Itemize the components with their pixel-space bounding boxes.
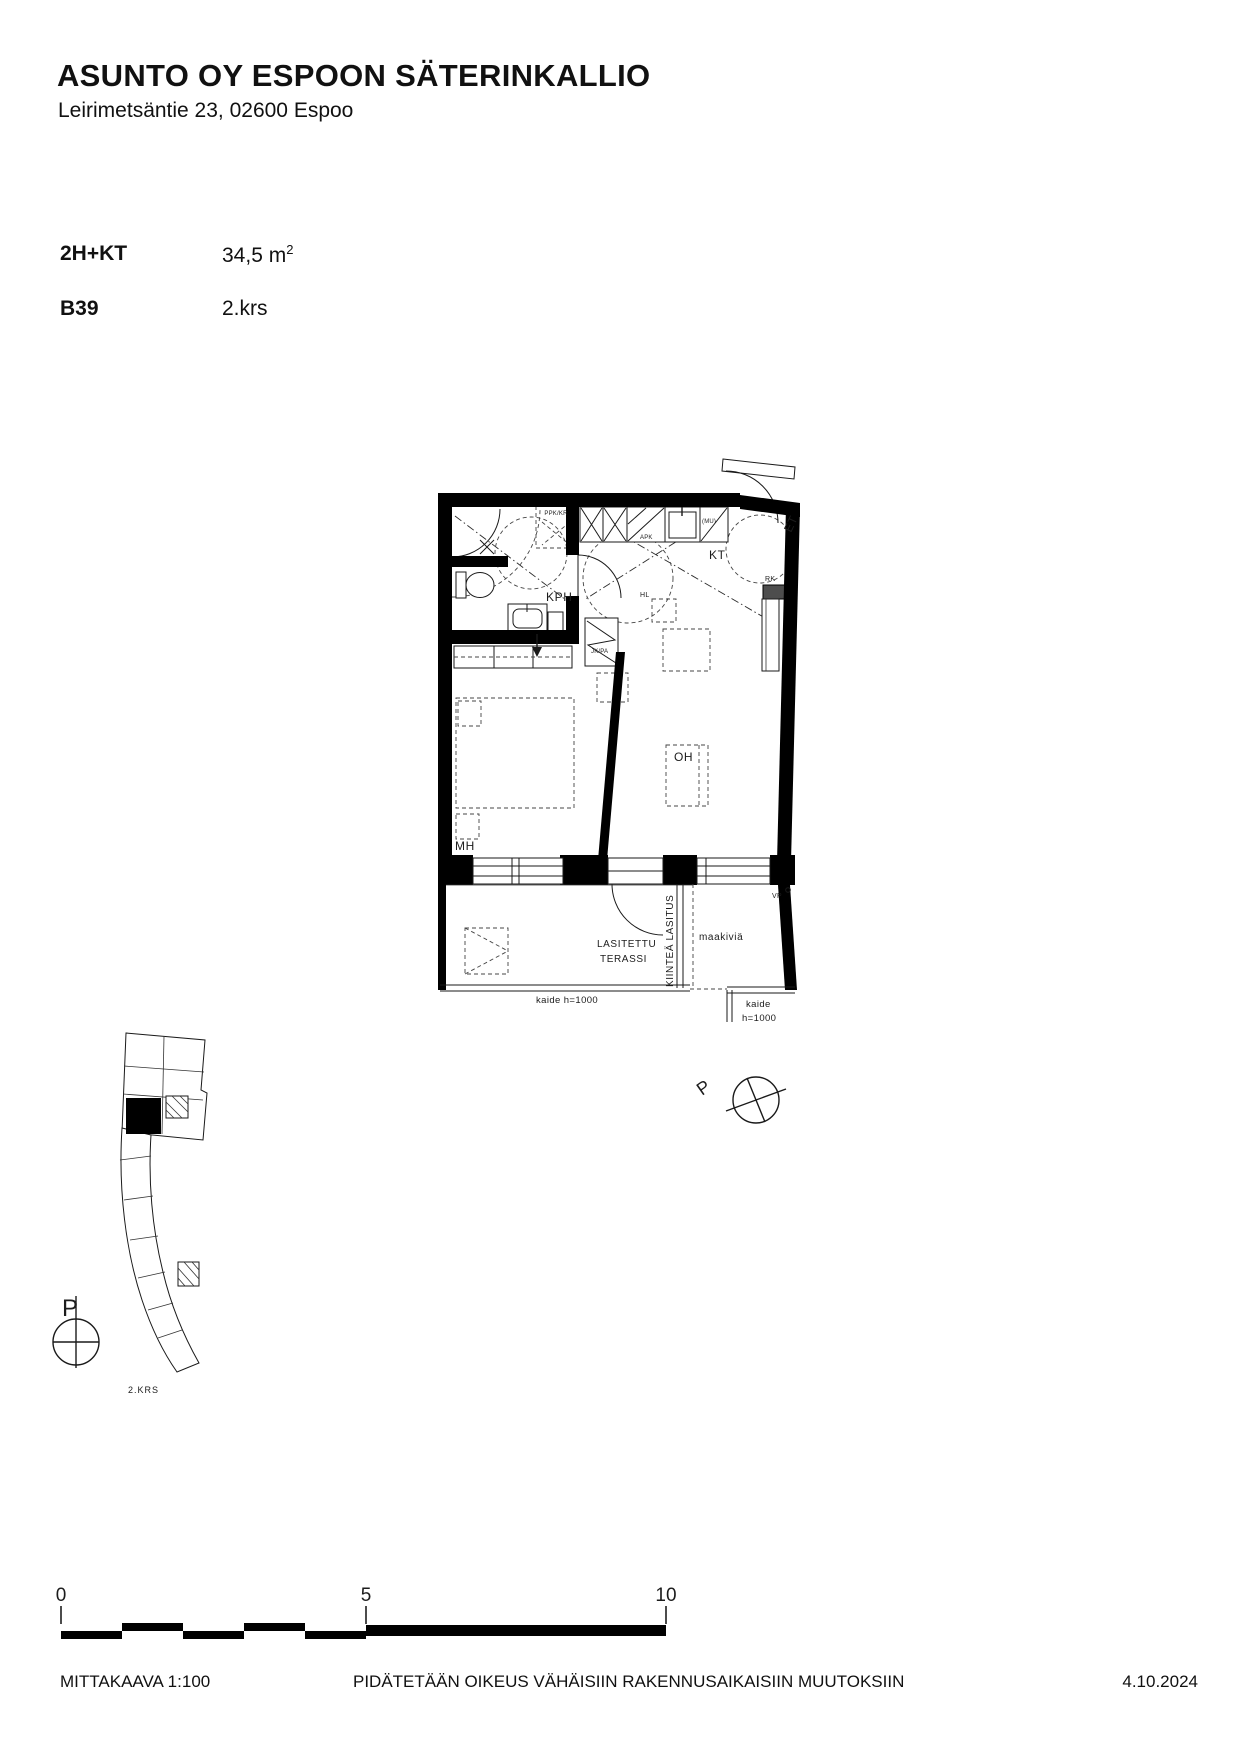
room-label-kph: KPH xyxy=(546,590,572,604)
toilet-tank xyxy=(456,572,466,598)
scale-tick-0: 0 xyxy=(56,1585,67,1606)
label-ppk-kr: PPK/KR xyxy=(544,511,568,517)
apartment-number: B39 xyxy=(60,297,99,321)
label-hl: HL xyxy=(640,592,650,599)
window xyxy=(473,858,563,884)
scale-tick-10: 10 xyxy=(655,1585,676,1606)
room-label-mh: MH xyxy=(455,839,475,853)
label-mu: (MU) xyxy=(702,519,716,525)
partition-wall xyxy=(598,652,625,860)
highlighted-apartment xyxy=(126,1098,161,1134)
scale-tick-5: 5 xyxy=(361,1585,372,1606)
pillow xyxy=(458,701,481,726)
north-compass-icon: P xyxy=(693,1076,786,1123)
label-vp: VP xyxy=(772,893,782,900)
room-label-kt: KT xyxy=(709,548,726,562)
bed xyxy=(456,698,574,808)
stairwell-hatch xyxy=(178,1262,199,1286)
ground-stone-label: maakiviä xyxy=(699,932,743,943)
building-outline xyxy=(120,1033,207,1372)
window xyxy=(697,858,770,884)
room-label-oh: OH xyxy=(674,750,693,764)
railing-label-right-2: h=1000 xyxy=(742,1013,776,1024)
entry-closet xyxy=(762,599,779,671)
terrace-label-2: TERASSI xyxy=(600,954,647,965)
floor-plan-drawing: KPH KT ET MH OH RK APK (MU) HL JK/PA PPK… xyxy=(370,430,810,1130)
shower-rod xyxy=(452,509,500,557)
hl-box xyxy=(652,599,676,622)
site-floor-label: 2.KRS xyxy=(128,1385,159,1395)
walls xyxy=(438,493,800,990)
fridge-freezer xyxy=(585,618,618,666)
terrace-furniture xyxy=(465,928,508,974)
apartment-floor: 2.krs xyxy=(222,297,268,321)
label-apk: APK xyxy=(640,535,653,541)
apartment-area: 34,5 m2 xyxy=(222,242,293,268)
area-exponent: 2 xyxy=(286,242,293,257)
scale-bar-segments xyxy=(61,1623,666,1639)
disclaimer-text: PIDÄTETÄÄN OIKEUS VÄHÄISIIN RAKENNUSAIKA… xyxy=(353,1672,904,1692)
north-label: P xyxy=(693,1076,714,1099)
site-plan: P 2.KRS xyxy=(40,1020,260,1410)
terrace-label-1: LASITETTU xyxy=(597,939,656,950)
terrace xyxy=(440,884,795,1022)
entrance-door-leaf xyxy=(722,459,795,479)
scale-text: MITTAKAAVA 1:100 xyxy=(60,1672,210,1692)
site-north-compass-icon: P xyxy=(53,1295,99,1368)
stairwell-hatch xyxy=(166,1096,188,1118)
windows xyxy=(473,858,770,884)
label-rk: RK xyxy=(765,576,775,583)
apartment-type: 2H+KT xyxy=(60,242,127,266)
floor-plan-sheet: ASUNTO OY ESPOON SÄTERINKALLIO Leirimets… xyxy=(0,0,1240,1754)
page-title: ASUNTO OY ESPOON SÄTERINKALLIO xyxy=(57,58,650,94)
toilet-bowl xyxy=(466,573,494,598)
terrace-door-swing xyxy=(612,884,663,935)
railing-label-left: kaide h=1000 xyxy=(536,995,598,1006)
site-north-label: P xyxy=(62,1295,78,1322)
scale-bar: 0 5 10 xyxy=(30,1575,710,1665)
fixed-glazing-label: KIINTEÄ LASITUS xyxy=(664,895,676,987)
date-text: 4.10.2024 xyxy=(1122,1672,1198,1692)
address: Leirimetsäntie 23, 02600 Espoo xyxy=(58,99,353,123)
bedroom-closets xyxy=(454,646,572,668)
railing-label-right-1: kaide xyxy=(746,999,771,1010)
table xyxy=(663,629,710,671)
label-jk-pa: JK/PA xyxy=(591,649,608,655)
nightstand xyxy=(456,814,479,839)
